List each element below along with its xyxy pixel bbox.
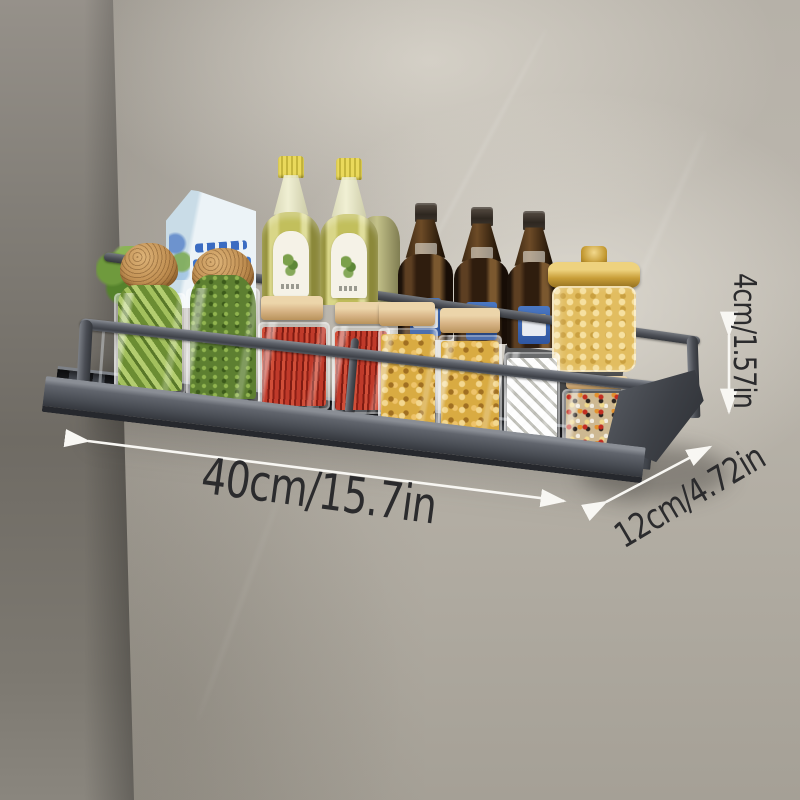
height-dimension-label: 4cm/1.57in: [726, 273, 762, 408]
bottle-cap: [523, 211, 545, 230]
edamame-canister: [114, 293, 186, 395]
oil-label: [273, 231, 309, 296]
oil-label: [331, 233, 367, 298]
bottle-cap: [415, 203, 437, 222]
pasta-jar: [548, 246, 640, 372]
bottle-cap: [471, 207, 493, 226]
glass-glare: [114, 293, 186, 395]
olive-oil-bottle: [320, 158, 378, 305]
glass-glare: [258, 322, 330, 410]
wood-lid: [440, 308, 500, 333]
jar-glass: [552, 286, 637, 372]
product-photo: 40cm/15.7in 12cm/4.72in 4cm/1.57in: [0, 0, 800, 800]
wood-lid: [379, 302, 435, 326]
bottle-cap: [336, 158, 362, 180]
cork-lid: [120, 243, 178, 290]
wood-lid: [261, 296, 323, 320]
olive-oil-bottle: [262, 156, 320, 303]
gold-lid: [548, 262, 640, 287]
bottle-neck: [320, 177, 378, 217]
bottle-cap: [278, 156, 304, 178]
bottle-neck: [262, 175, 320, 215]
